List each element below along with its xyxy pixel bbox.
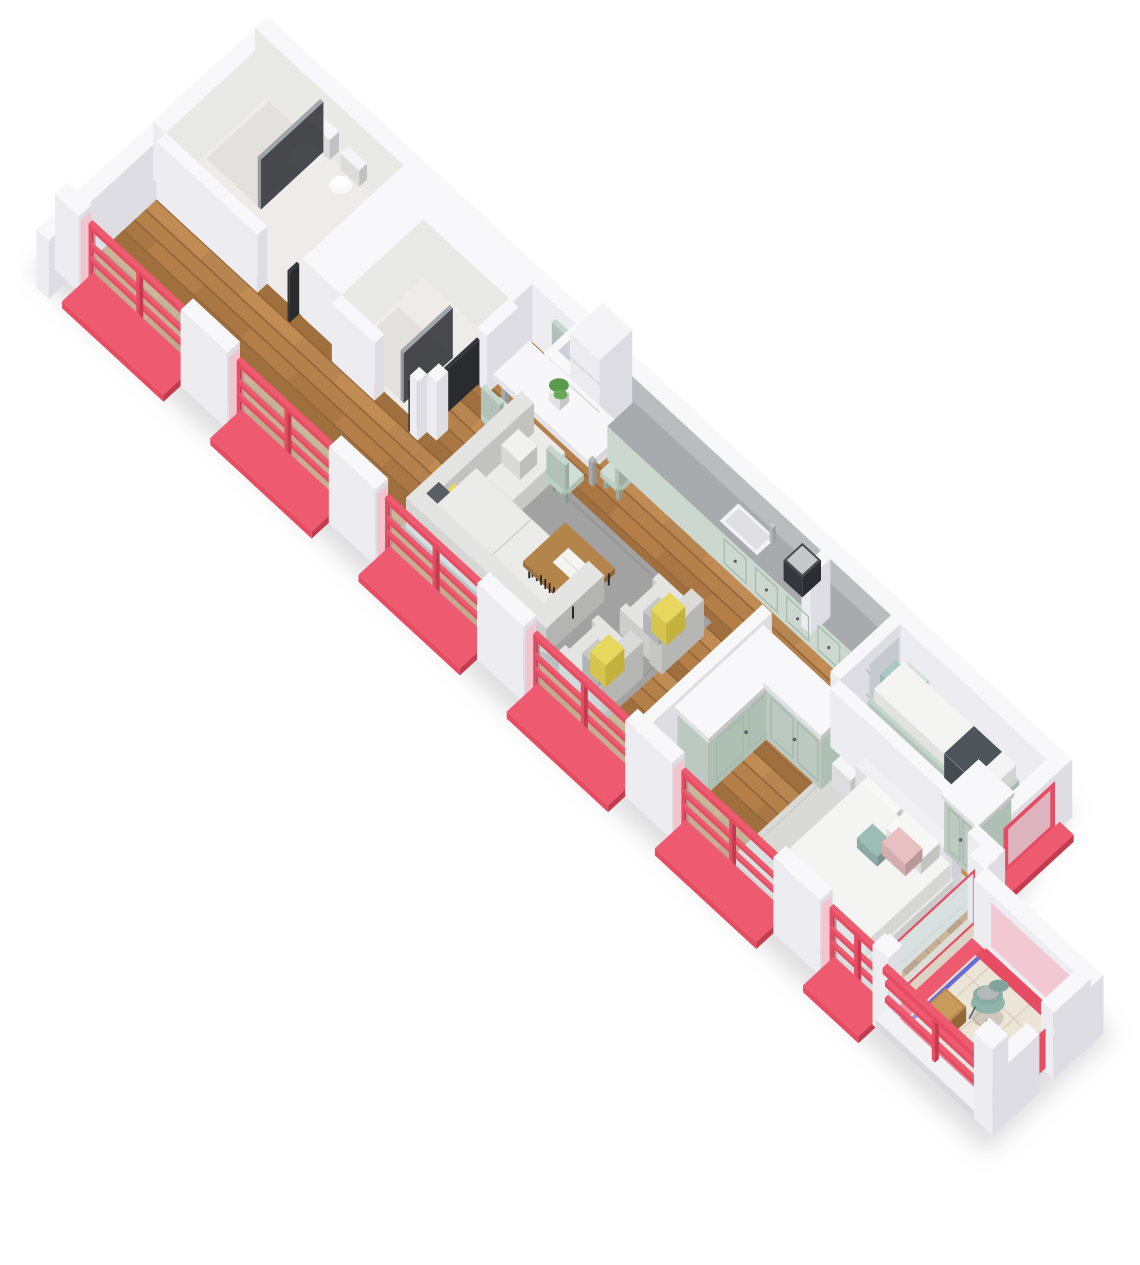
kitchen-counter — [765, 588, 768, 591]
shower-glass — [401, 350, 404, 403]
kitchen-sink — [773, 525, 776, 544]
dining-table — [593, 459, 597, 487]
exterior-wall-end — [36, 229, 49, 298]
kitchen-sink — [770, 525, 773, 544]
balcony-glazing — [932, 1018, 935, 1063]
kitchen-counter — [796, 617, 799, 620]
shower-glass — [258, 157, 261, 210]
bathroom-walls — [258, 226, 267, 293]
wardrobe — [744, 730, 748, 734]
bathroom-walls — [427, 374, 436, 441]
balcony-side-wall — [1091, 975, 1104, 1044]
plant — [554, 390, 568, 400]
window-frame — [385, 498, 388, 556]
wardrobe — [793, 738, 797, 742]
balcony-end-wall — [993, 1035, 1009, 1135]
bathroom-walls — [288, 270, 290, 322]
bidet — [332, 176, 350, 188]
bathroom-walls — [290, 264, 299, 323]
kids-wardrobe — [959, 838, 963, 842]
balcony-chair — [989, 980, 1009, 992]
balcony-end-wall — [974, 1032, 993, 1135]
floor-plan-render: 3D isometric apartment floor plan render — [0, 0, 1140, 1265]
dining-table — [589, 459, 593, 487]
kitchen-counter — [827, 646, 830, 649]
kitchen-counter — [734, 560, 737, 563]
bathroom-walls — [410, 375, 418, 440]
window-frame — [533, 635, 536, 693]
dining-chair — [565, 462, 569, 492]
bathroom-walls — [375, 334, 384, 401]
window-frame — [681, 772, 684, 830]
bathroom-walls — [437, 372, 449, 441]
bathroom-walls — [418, 374, 427, 441]
apartment-3d-scene — [0, 0, 1140, 1265]
window-frame — [237, 361, 240, 419]
window-frame — [89, 225, 92, 283]
window-frame — [830, 909, 833, 967]
